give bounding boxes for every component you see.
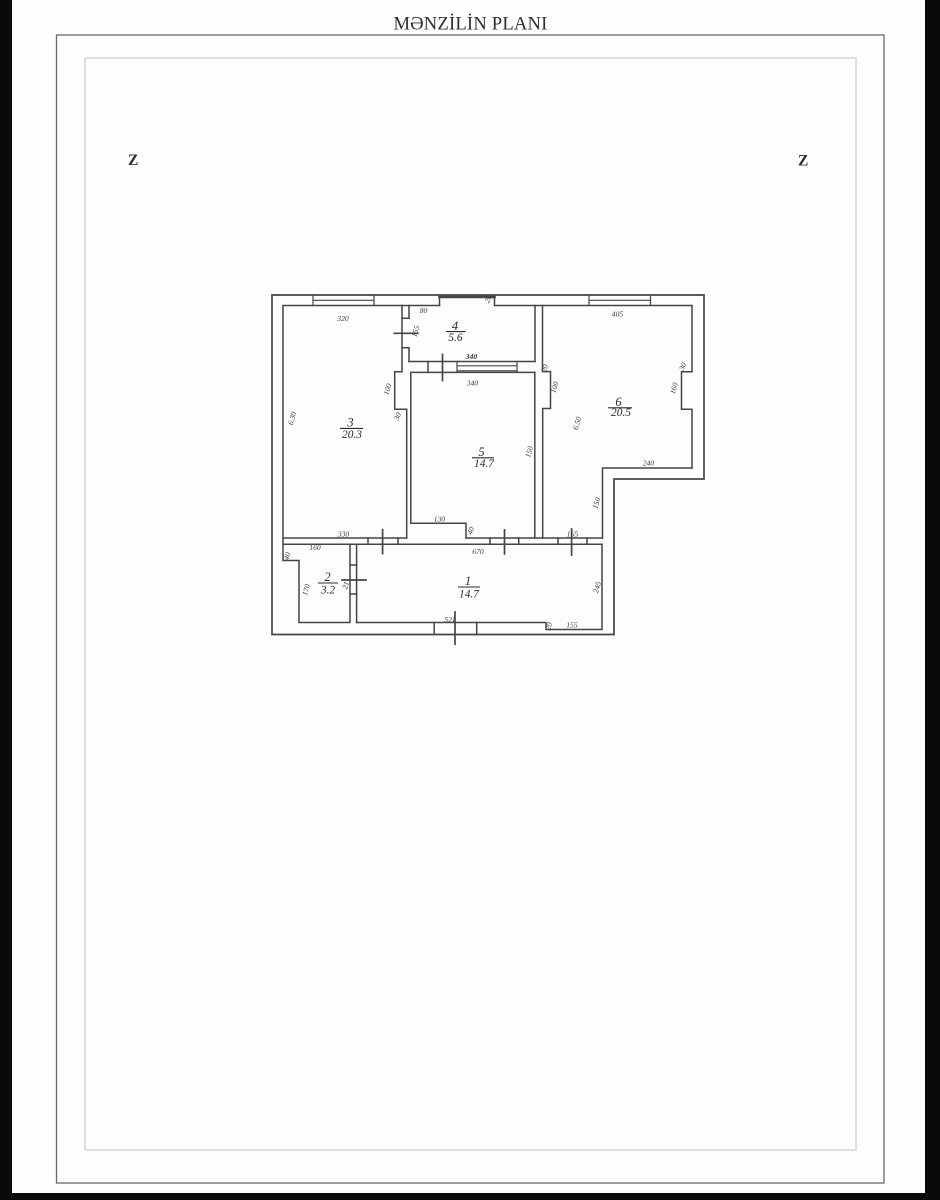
svg-text:MƏNZİLİN PLANI: MƏNZİLİN PLANI bbox=[393, 14, 547, 35]
svg-text:320: 320 bbox=[336, 314, 349, 323]
svg-text:5: 5 bbox=[478, 445, 484, 459]
svg-text:Z: Z bbox=[128, 152, 138, 169]
svg-text:240: 240 bbox=[643, 459, 655, 468]
svg-text:130: 130 bbox=[434, 515, 446, 524]
svg-text:3.2: 3.2 bbox=[320, 585, 336, 597]
svg-text:160: 160 bbox=[309, 543, 321, 552]
svg-text:4: 4 bbox=[452, 319, 458, 333]
svg-text:405: 405 bbox=[612, 310, 624, 319]
svg-text:521: 521 bbox=[444, 615, 455, 624]
svg-text:670: 670 bbox=[472, 547, 484, 556]
svg-text:20.3: 20.3 bbox=[342, 429, 362, 441]
svg-text:14.7: 14.7 bbox=[474, 458, 495, 470]
svg-text:14.7: 14.7 bbox=[459, 589, 480, 601]
svg-text:3: 3 bbox=[346, 416, 353, 430]
svg-text:80: 80 bbox=[420, 306, 428, 315]
svg-text:20.5: 20.5 bbox=[611, 407, 631, 419]
svg-text:340: 340 bbox=[466, 379, 479, 388]
svg-text:1: 1 bbox=[465, 574, 471, 588]
svg-text:330: 330 bbox=[337, 530, 350, 539]
svg-text:155: 155 bbox=[566, 621, 578, 630]
svg-text:165: 165 bbox=[567, 530, 579, 539]
svg-text:5.6: 5.6 bbox=[448, 332, 463, 344]
svg-text:Z: Z bbox=[798, 153, 808, 170]
svg-text:340: 340 bbox=[465, 352, 478, 361]
svg-text:2: 2 bbox=[324, 570, 330, 584]
